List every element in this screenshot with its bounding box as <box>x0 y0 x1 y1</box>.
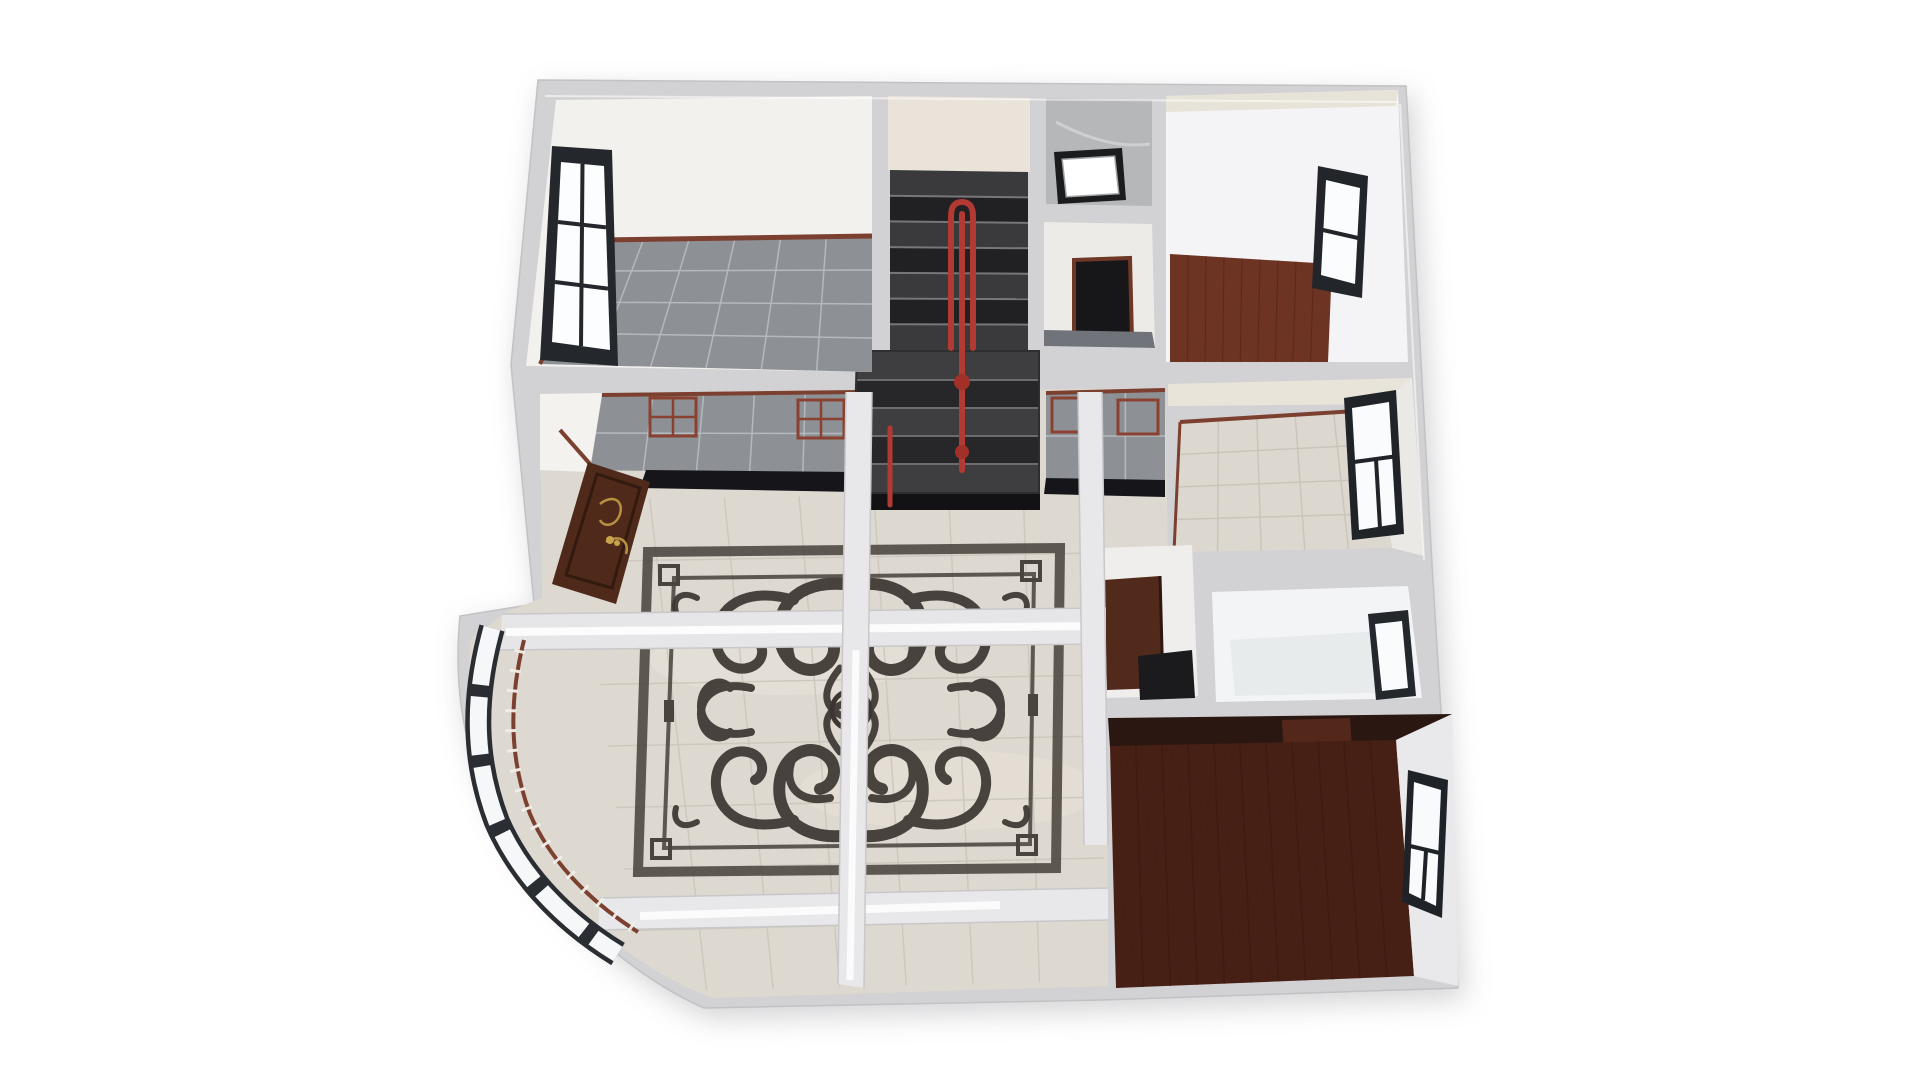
entrance-door-handle-2 <box>614 540 620 546</box>
upper-hall-floor <box>1044 330 1155 348</box>
closet-cabinet <box>1138 650 1195 700</box>
stair-railing-knob-2 <box>955 445 969 459</box>
black-marble-strip-east <box>1044 478 1165 497</box>
floorplan-3d-render <box>0 0 1920 1080</box>
floorplan-render-canvas <box>0 0 1920 1080</box>
upper-hall-door <box>1074 258 1132 342</box>
stair-railing-knob-1 <box>954 374 970 390</box>
medallion-side-tab-left <box>664 700 674 722</box>
stair-black-marble-strip <box>848 494 1040 510</box>
entrance-door-handle-1 <box>606 536 614 544</box>
stair-room-wall-face <box>888 96 1030 172</box>
skylight-glass <box>1063 157 1118 196</box>
stair-lower-flight <box>854 352 1038 492</box>
room-topright-floor <box>1170 254 1332 362</box>
medallion-side-tab-right <box>1028 694 1038 716</box>
room-midright-window-glass <box>1352 402 1396 530</box>
